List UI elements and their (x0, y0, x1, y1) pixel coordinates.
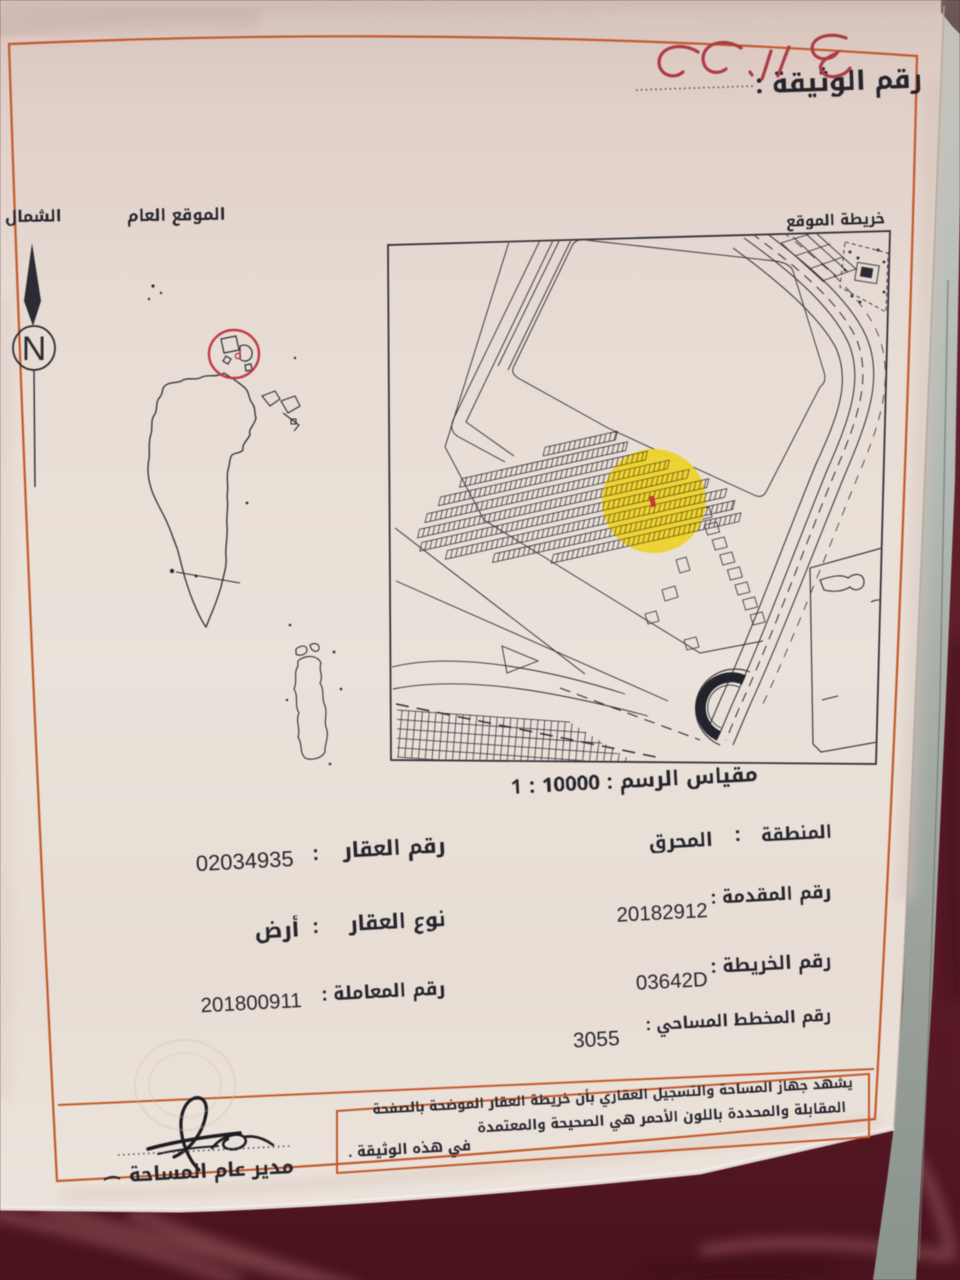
svg-text:20182912: 20182912 (616, 899, 708, 927)
svg-text:N: N (22, 330, 47, 368)
svg-text:3055: 3055 (572, 1027, 620, 1052)
svg-text:02034935: 02034935 (195, 846, 294, 876)
svg-text:03642D: 03642D (635, 968, 708, 995)
svg-text::: : (734, 823, 742, 846)
svg-text::: : (312, 842, 320, 865)
svg-text::: : (312, 915, 320, 938)
